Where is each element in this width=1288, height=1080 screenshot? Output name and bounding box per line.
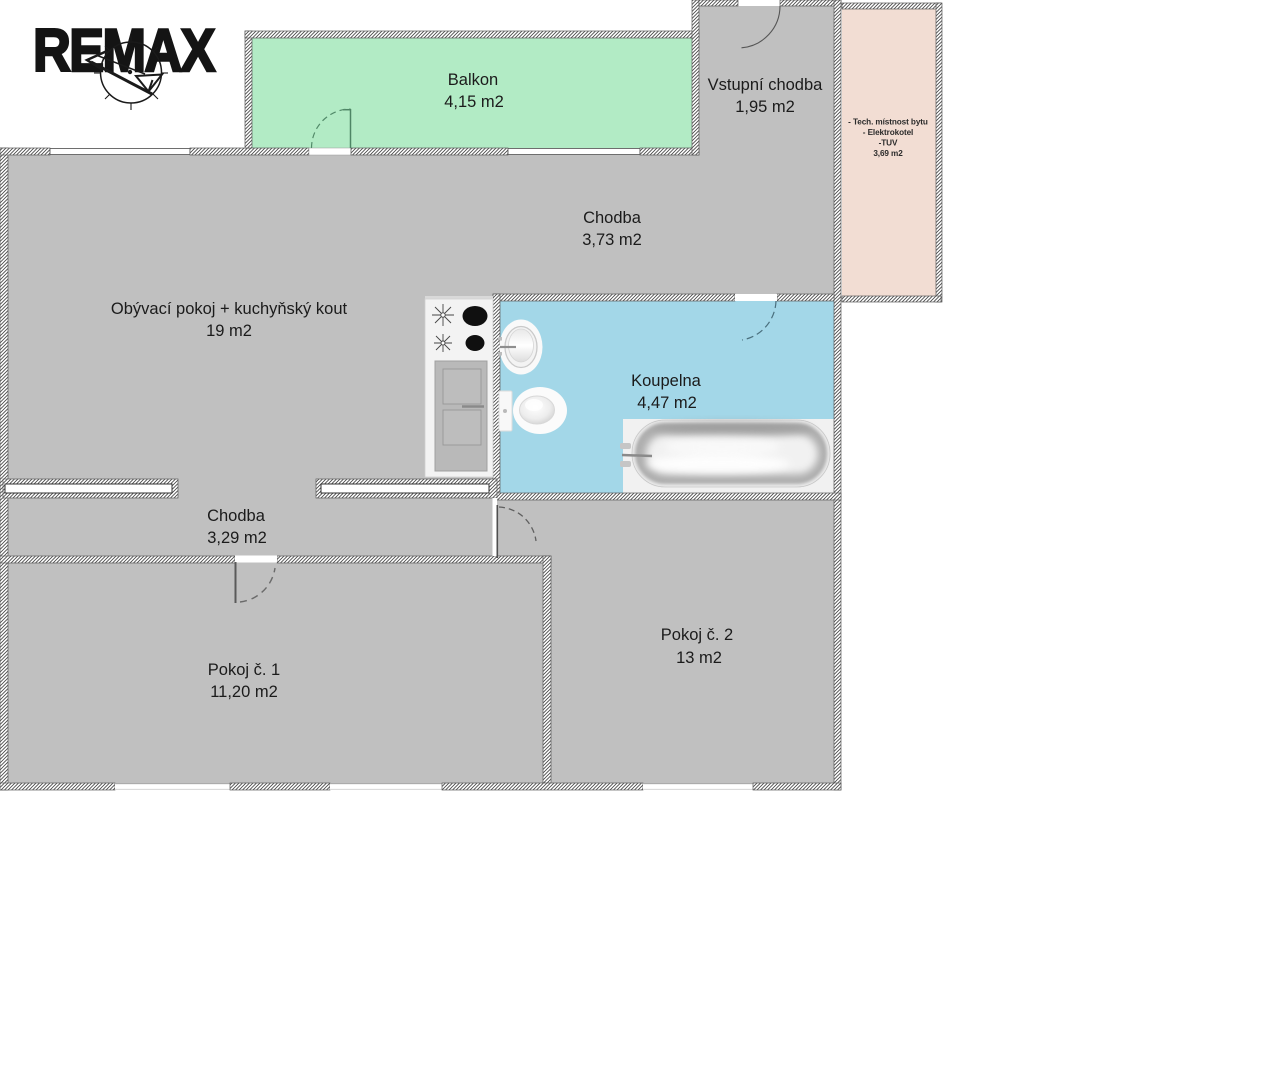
- svg-text:4,47 m2: 4,47 m2: [637, 394, 697, 412]
- svg-text:Koupelna: Koupelna: [631, 372, 702, 390]
- svg-text:Chodba: Chodba: [207, 507, 266, 525]
- svg-text:Balkon: Balkon: [448, 71, 498, 89]
- svg-text:Pokoj č. 2: Pokoj č. 2: [661, 626, 733, 644]
- svg-text:3,73 m2: 3,73 m2: [582, 231, 642, 249]
- svg-text:Chodba: Chodba: [583, 209, 642, 227]
- svg-text:Obývací pokoj + kuchyňský kout: Obývací pokoj + kuchyňský kout: [111, 300, 348, 318]
- svg-text:- Tech. místnost bytu: - Tech. místnost bytu: [848, 118, 928, 127]
- svg-text:Vstupní chodba: Vstupní chodba: [708, 76, 823, 94]
- svg-text:1,95 m2: 1,95 m2: [735, 98, 795, 116]
- svg-text:-TUV: -TUV: [879, 139, 898, 148]
- svg-text:13 m2: 13 m2: [676, 649, 722, 667]
- svg-text:11,20 m2: 11,20 m2: [210, 683, 278, 701]
- svg-text:3,69 m2: 3,69 m2: [873, 149, 903, 158]
- svg-text:4,15 m2: 4,15 m2: [444, 93, 504, 111]
- svg-text:Pokoj č. 1: Pokoj č. 1: [208, 661, 280, 679]
- svg-text:3,29 m2: 3,29 m2: [207, 529, 267, 547]
- svg-text:REMAX: REMAX: [33, 17, 216, 84]
- svg-text:19 m2: 19 m2: [206, 322, 252, 340]
- svg-text:- Elektrokotel: - Elektrokotel: [863, 128, 913, 137]
